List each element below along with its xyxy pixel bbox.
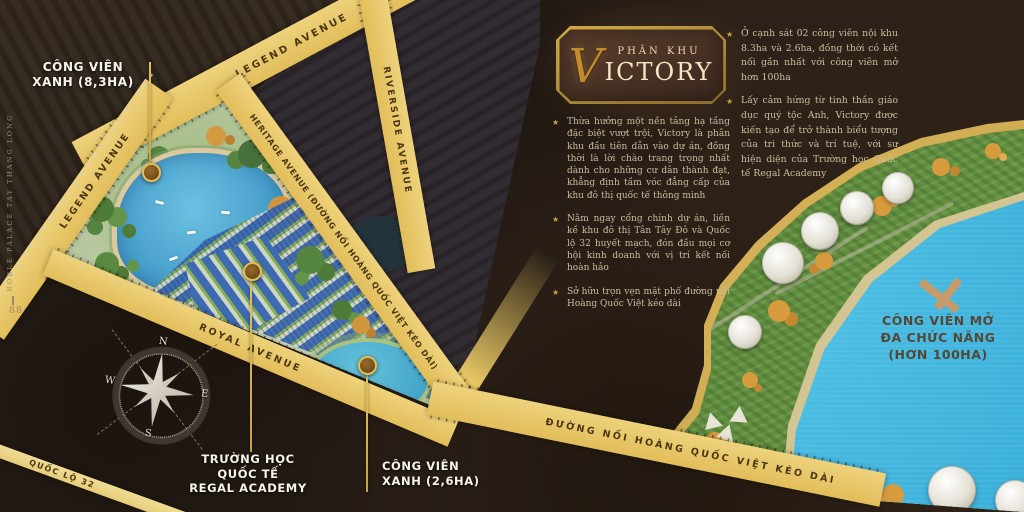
dome-structure xyxy=(840,191,874,225)
boat-icon xyxy=(169,256,178,262)
tree-cluster xyxy=(296,246,324,274)
callout-line xyxy=(250,277,252,452)
tree-cluster-autumn xyxy=(932,158,950,176)
bullet-text: Nằm ngay cổng chính dự án, liền kề khu đ… xyxy=(567,214,730,273)
bullet-text: Ở cạnh sát 02 công viên nội khu 8.3ha và… xyxy=(741,28,898,83)
dome-structure xyxy=(762,242,804,284)
label-green-park-83: CÔNG VIÊN XANH (8,3HA) xyxy=(22,60,144,90)
compass-south: S xyxy=(144,428,152,440)
label-regal-academy: TRƯỜNG HỌC QUỐC TẾ REGAL ACADEMY xyxy=(172,452,324,496)
star-icon: ★ xyxy=(552,214,559,226)
dome-structure xyxy=(928,466,976,512)
spine-title: NOBLE PALACE TAY THANG LONG xyxy=(6,162,14,292)
dome-structure xyxy=(801,212,839,250)
bullet-list-main: ★ Thừa hưởng một nền tảng hạ tầng đặc bi… xyxy=(552,116,730,321)
location-marker-icon xyxy=(142,163,161,182)
label-open-park: CÔNG VIÊN MỞ ĐA CHỨC NĂNG (HƠN 100HA) xyxy=(838,312,1024,363)
callout-line xyxy=(366,372,368,492)
dome-structure xyxy=(728,315,762,349)
list-item: ★ Nằm ngay cổng chính dự án, liền kề khu… xyxy=(552,213,730,274)
boat-icon xyxy=(221,211,230,215)
list-item: ★ Ở cạnh sát 02 công viên nội khu 8.3ha … xyxy=(726,27,898,85)
list-item: ★ Sở hữu trọn vẹn mặt phố đường nối Hoàn… xyxy=(552,286,730,311)
star-icon: ★ xyxy=(552,117,559,129)
star-icon: ★ xyxy=(726,28,733,43)
victory-title-box: V PHÂN KHU ICTORY xyxy=(556,26,726,104)
list-item: ★ Lấy cảm hứng từ tinh thần giáo dục quý… xyxy=(726,94,898,182)
bullet-list-side: ★ Ở cạnh sát 02 công viên nội khu 8.3ha … xyxy=(726,27,898,191)
list-item: ★ Thừa hưởng một nền tảng hạ tầng đặc bi… xyxy=(552,116,730,202)
tree-cluster-autumn xyxy=(815,252,833,270)
location-marker-icon xyxy=(243,262,262,281)
compass-west: W xyxy=(104,375,116,387)
tree-cluster-autumn xyxy=(742,372,758,388)
tree-cluster-autumn xyxy=(352,316,370,334)
bullet-text: Sở hữu trọn vẹn mặt phố đường nối Hoàng … xyxy=(567,287,730,309)
canopy-structure xyxy=(729,405,748,422)
boat-icon xyxy=(187,230,196,234)
label-green-park-26: CÔNG VIÊN XANH (2,6HA) xyxy=(382,459,512,489)
location-marker-icon xyxy=(358,356,377,375)
callout-line xyxy=(149,62,151,166)
star-icon: ★ xyxy=(726,95,733,110)
brochure-page: CÔNG VIÊN MỞ ĐA CHỨC NĂNG (HƠN 100HA) LE… xyxy=(0,0,1024,512)
compass-icon: N E S W xyxy=(96,329,218,451)
title-initial: V xyxy=(569,50,603,84)
bullet-text: Thừa hưởng một nền tảng hạ tầng đặc biệt… xyxy=(567,117,730,201)
tree-cluster xyxy=(332,300,352,320)
title-rest: ICTORY xyxy=(605,60,714,84)
tree-cluster-autumn xyxy=(985,143,1001,159)
compass-east: E xyxy=(200,388,209,400)
page-number: 88 xyxy=(9,305,23,316)
tree-cluster-autumn xyxy=(768,300,790,322)
star-icon: ★ xyxy=(552,287,559,299)
boat-icon xyxy=(155,200,164,205)
spine-divider xyxy=(12,296,14,305)
tree-cluster-autumn xyxy=(206,126,226,146)
compass-north: N xyxy=(158,336,168,348)
victory-title-box-inner: V PHÂN KHU ICTORY xyxy=(559,29,724,102)
bullet-text: Lấy cảm hứng từ tinh thần giáo dục quý t… xyxy=(741,95,898,179)
